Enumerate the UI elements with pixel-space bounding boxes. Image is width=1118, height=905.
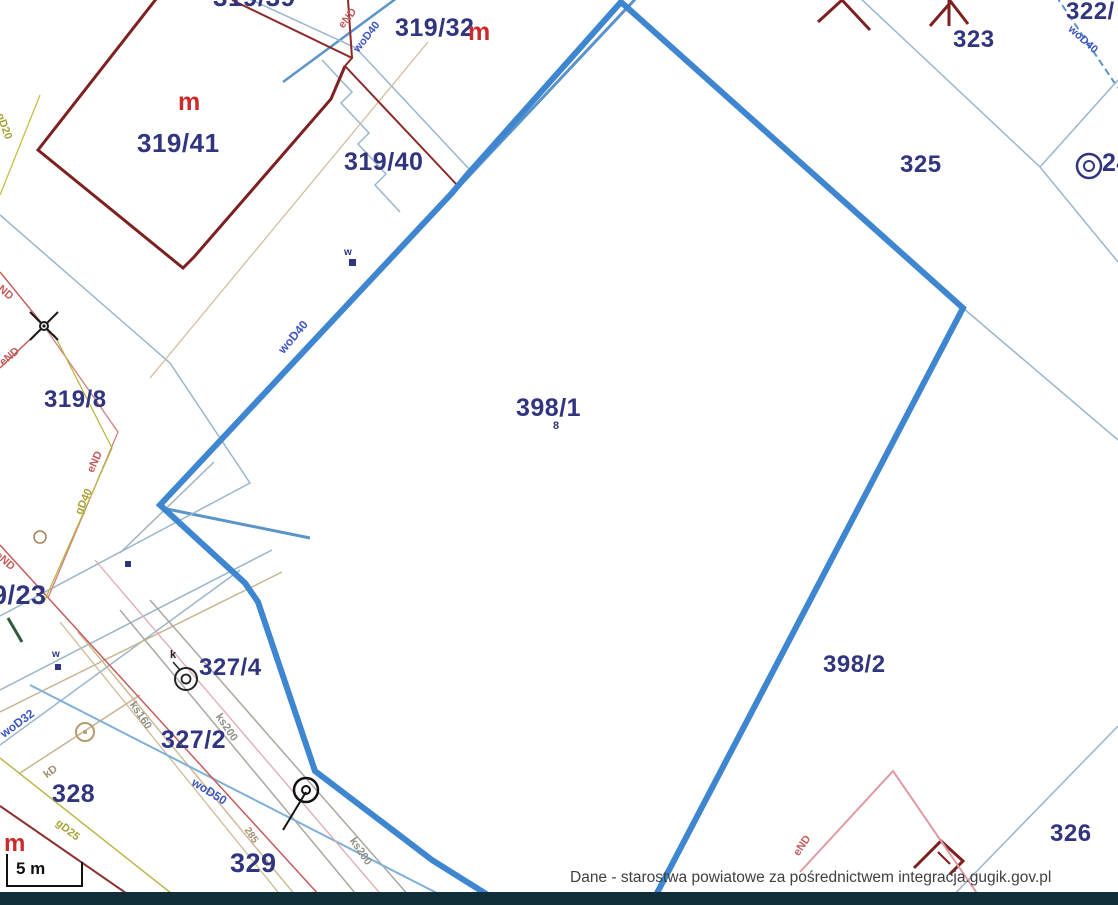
parcel-label-327-2: 327/2 [161,728,226,753]
well-tan-circle-icon [34,531,94,741]
parcel-label-319-8: 319/8 [44,388,107,412]
manhole-double-circle-icon [1077,154,1101,178]
lamp-cross-icon [30,312,58,340]
parcel-label-398-1: 398/1 [516,396,581,421]
attribution-text: Dane - starostwa powiatowe za pośrednict… [570,869,1051,887]
parcel-label-319-41: 319/41 [137,130,220,156]
water-line-wod40 [160,0,1118,538]
parcel-label-324: 24 [1102,151,1118,176]
utility-label-w: w [344,248,352,258]
parcel-label-328: 328 [52,782,95,807]
parcel-label-326: 326 [1050,822,1092,846]
parcel-label-322: 322/ [1066,0,1115,24]
parcel-label-325: 325 [900,153,942,177]
parcel-label-9-23: 9/23 [0,582,47,609]
building-mark-m: m [178,90,200,115]
scale-bar-label: 5 m [16,859,45,879]
parcel-label-319-32: 319/32 [395,16,474,41]
utility-label-k: k [170,650,176,661]
building-mark-m: m [468,20,490,45]
utility-label-w: w [52,650,60,660]
parcel-label-319-39: 319/39 [213,0,296,10]
highlighted-parcel-outline[interactable] [160,2,963,905]
node-square-icon [125,561,131,567]
parcel-label-323: 323 [953,28,995,52]
bottom-bar [0,892,1118,905]
parcel-label-319-40: 319/40 [344,150,423,175]
parcel-label-398-2: 398/2 [823,653,886,677]
parcel-label-327-4: 327/4 [199,656,262,680]
building-mark-m: m [4,832,25,856]
parcel-label-329: 329 [230,850,277,877]
cadastral-map[interactable]: 319/39 319/32 319/41 319/40 319/8 323 32… [0,0,1118,905]
parcel-label-398-1-subscript: 8 [553,421,560,432]
